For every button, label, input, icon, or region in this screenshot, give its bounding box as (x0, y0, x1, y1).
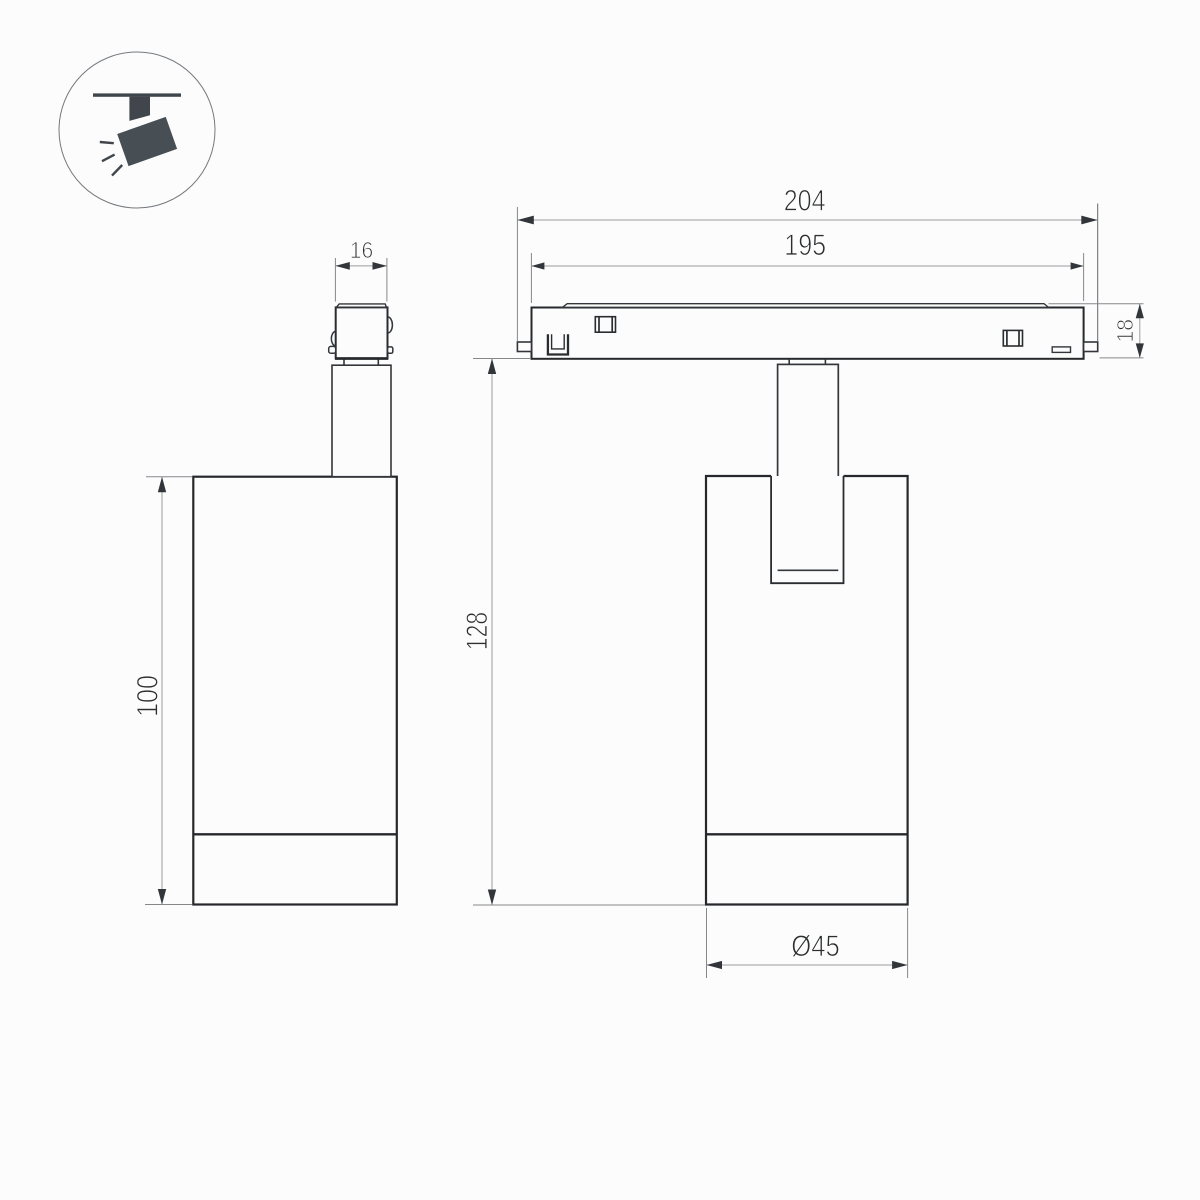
svg-text:128: 128 (460, 612, 493, 650)
svg-text:18: 18 (1112, 319, 1138, 343)
svg-text:204: 204 (784, 184, 826, 217)
svg-text:195: 195 (784, 228, 826, 261)
svg-text:100: 100 (130, 675, 163, 717)
svg-text:16: 16 (350, 237, 374, 263)
svg-text:Ø45: Ø45 (791, 929, 839, 962)
